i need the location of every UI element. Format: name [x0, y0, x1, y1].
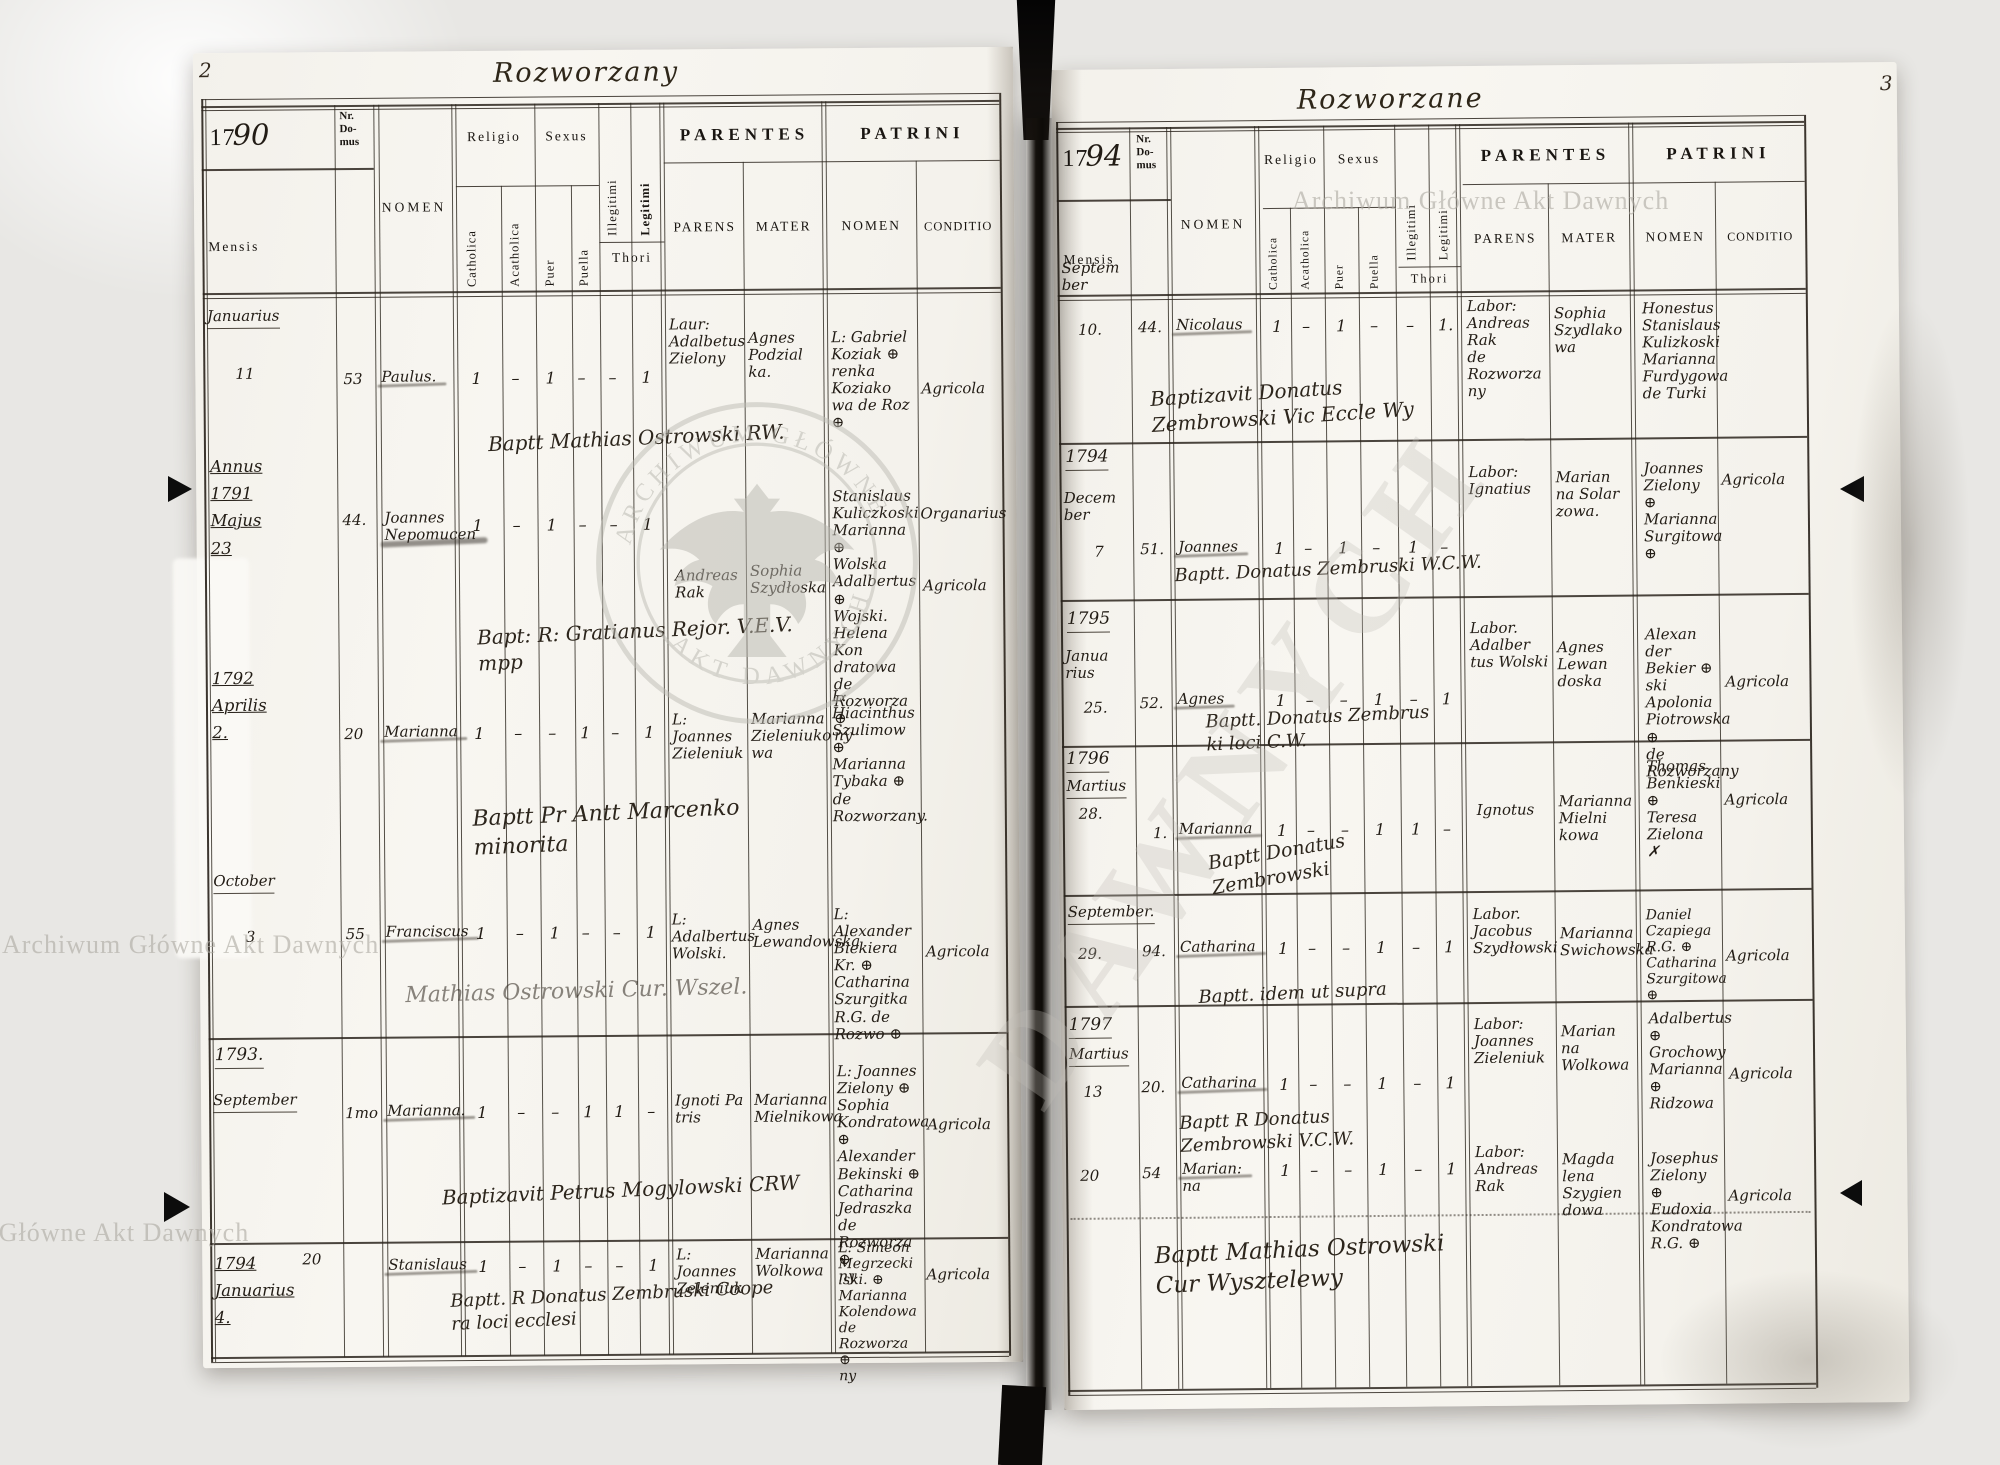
archive-watermark-text: Archiwum Główne Akt Dawnych — [0, 1218, 249, 1248]
baptism-note: Baptt Mathias Ostrowski Cur Wysztelewy — [1154, 1229, 1447, 1302]
cell-puella-mark: – — [582, 924, 590, 942]
column-header-puer: Puer — [1333, 219, 1347, 289]
baptism-note: Baptt Pr Antt Marcenko minorita — [472, 794, 742, 863]
cell-month: Decem ber — [1064, 489, 1117, 524]
cell-godparents: Daniel Czapiega R.G. ⊕ Catharina Szurgit… — [1646, 908, 1723, 1004]
grid-line — [1548, 183, 1561, 1385]
cell-mother: Marianna Mielnikowa — [754, 1091, 830, 1126]
page-number: 2 — [199, 59, 212, 82]
cell-godparents: Josephus Zielony ⊕ Eudoxia Kondratowa R.… — [1650, 1150, 1723, 1253]
cell-godparents: Honestus Stanislaus Kulizkoski Marianna … — [1642, 300, 1715, 403]
column-header-parentes: PARENTES — [663, 124, 825, 145]
cell-acatholica-mark: – — [517, 1104, 525, 1122]
cell-legitimi-mark: 1 — [1444, 938, 1454, 956]
cell-illegitimi-mark: – — [613, 924, 621, 942]
column-header-religio: Religio — [1258, 151, 1323, 167]
cell-legitimi-mark: 1 — [1442, 690, 1452, 708]
year-cell: 1790 — [209, 119, 269, 153]
grid-line — [201, 93, 999, 100]
column-header-sexus: Sexus — [534, 128, 598, 144]
cell-day: 20 — [1080, 1168, 1099, 1185]
entry-row: October 3 55 Franciscus 1 – 1 – – 1 L: A… — [199, 865, 1019, 871]
cell-mother: Agnes Lewan doska — [1557, 639, 1631, 691]
cell-day: 11 — [235, 366, 254, 383]
column-header-acatholica: Acatholica — [1299, 214, 1313, 290]
column-header-puella: Puella — [1368, 219, 1382, 289]
cell-condition: Agricola — [921, 380, 985, 398]
cell-acatholica-mark: – — [512, 517, 520, 535]
column-header-mensis: Mensis — [208, 239, 259, 255]
cell-name: Joannes — [1178, 538, 1238, 556]
cell-legitimi-mark: 1 — [1446, 1160, 1456, 1178]
cell-condition: Agricola — [1721, 471, 1785, 489]
cell-catholica-mark: 1 — [474, 725, 484, 743]
cell-condition: Agricola — [1728, 1187, 1792, 1205]
grid-line — [1428, 124, 1441, 1386]
cell-mother: Sophia Szydlako wa — [1554, 305, 1628, 357]
column-header-acatholica: Acatholica — [507, 193, 522, 287]
cell-name: Joannes Nepomucen — [384, 509, 476, 544]
column-header-thori: Thori — [599, 250, 664, 266]
grid-line — [203, 287, 1001, 295]
column-header-patrini-nomen: NOMEN — [828, 218, 914, 234]
entry-row: Januarius 11 53 Paulus. 1 – 1 – – 1 Laur… — [195, 302, 1015, 308]
cell-catholica-mark: 1 — [471, 370, 481, 388]
cell-catholica-mark: 1 — [1278, 940, 1288, 958]
column-header-patrini: PATRINI — [1632, 143, 1804, 164]
cell-name: Marianna. — [387, 1102, 465, 1120]
cell-year: 1794 — [1065, 448, 1108, 472]
cell-puella-mark: 1 — [1376, 939, 1386, 957]
cell-legitimi-mark: – — [647, 1103, 655, 1121]
cell-condition: Agricola — [1725, 673, 1789, 691]
cell-mother: Marianna Wolkowa — [755, 1245, 831, 1280]
cell-legitimi-mark: – — [1443, 820, 1451, 838]
column-header-parens: PARENS — [1464, 230, 1546, 246]
cell-catholica-mark: 1 — [1280, 1162, 1290, 1180]
cell-catholica-mark: 1 — [478, 1258, 488, 1276]
cell-condition: Agricola — [926, 943, 990, 961]
cell-puer-mark: – — [548, 724, 556, 742]
grid-line — [501, 186, 511, 1356]
binding-tape-bottom — [998, 1385, 1046, 1465]
cell-mother: Marianna Mielni kowa — [1559, 793, 1633, 845]
cell-day: 10. — [1078, 322, 1102, 339]
cell-acatholica-mark: – — [511, 370, 519, 388]
column-header-nr-domus: Nr. Do- mus — [339, 110, 373, 150]
cell-father: Labor. Adalber tus Wolski — [1470, 619, 1550, 671]
column-header-patrini: PATRINI — [825, 123, 999, 144]
cell-puella-mark: – — [1370, 317, 1378, 335]
cell-mother: Marianna Swichowska — [1560, 925, 1634, 960]
cell-year-month: Annus 1791 Majus 23 — [210, 453, 263, 562]
cell-house-number: 53 — [343, 371, 362, 388]
cell-puer-mark: 1 — [1336, 317, 1346, 335]
cell-house-number: 1mo — [345, 1105, 378, 1122]
cell-name: Marian: na — [1182, 1160, 1242, 1195]
cell-house-number: 20. — [1141, 1079, 1165, 1096]
column-header-nr-domus: Nr. Do- mus — [1136, 133, 1168, 173]
cell-condition: Agricola — [1725, 791, 1789, 809]
cell-puer-mark: 1 — [545, 369, 555, 387]
cell-acatholica-mark: – — [518, 1258, 526, 1276]
cell-name: Franciscus — [386, 923, 469, 941]
archive-eagle-watermark: ARCHIWUM GŁÓWNE AKT DAWNYCH — [592, 398, 922, 728]
column-header-parens: PARENS — [666, 219, 743, 235]
column-header-conditio: CONDITIO — [916, 219, 1000, 234]
cell-month: Martius — [1066, 777, 1126, 799]
cell-puella-mark: 1 — [583, 1103, 593, 1121]
cell-legitimi-mark: 1 — [648, 1257, 658, 1275]
cell-mother: Agnes Podzial ka. — [748, 329, 822, 381]
cell-house-number: 20 — [344, 726, 363, 743]
cell-puella-mark: 1 — [1377, 1075, 1387, 1093]
grid-line — [1804, 115, 1818, 1388]
cell-puella-mark: – — [577, 369, 585, 387]
cell-acatholica-mark: – — [1302, 318, 1310, 336]
baptism-note: Baptizavit Petrus Mogylowski CRW — [441, 1169, 799, 1210]
cell-day: 25. — [1084, 700, 1108, 717]
cell-father: Laur: Adalbetus Zielony — [669, 316, 743, 368]
column-header-thori: Thori — [1399, 271, 1461, 286]
cell-puella-mark: – — [584, 1257, 592, 1275]
page-title-script: Rozworzany — [493, 57, 679, 89]
cell-month: Janua rius — [1065, 648, 1109, 683]
cell-legitimi-mark: 1 — [1445, 1074, 1455, 1092]
cell-illegitimi-mark: 1 — [614, 1103, 624, 1121]
cell-legitimi-mark: 1 — [646, 924, 656, 942]
cell-month: Septem ber — [1061, 259, 1119, 294]
baptism-note: Baptt R Donatus Zembrowski V.C.W. — [1179, 1104, 1355, 1158]
cell-catholica-mark: 1 — [477, 1104, 487, 1122]
column-header-nomen: NOMEN — [376, 199, 452, 215]
cell-godparents: L: Simeon Megrzecki lski. ⊕ Marianna Kol… — [838, 1241, 923, 1385]
cell-puer-mark: 1 — [552, 1257, 562, 1275]
cell-father: Labor: Joannes Zieleniuk — [1474, 1015, 1554, 1067]
cell-month: October — [213, 873, 275, 895]
cell-father: Ignoti Pa tris — [675, 1092, 749, 1127]
baptism-note: Baptt. R Donatus Zembruski Coope ra loci… — [450, 1276, 775, 1337]
cell-year: 1795 — [1067, 610, 1110, 634]
column-header-illegitimi: Illegitimi — [604, 114, 619, 236]
column-header-catholica: Catholica — [1267, 214, 1281, 290]
cell-godparents: Thomas Benkieski ⊕ Teresa Zielona ✗ — [1646, 758, 1719, 861]
cell-father: L: Adalbertus Wolski. — [672, 911, 750, 963]
page-marker-right — [1840, 1180, 1862, 1206]
cell-name: Catharina — [1181, 1074, 1257, 1092]
eagle-emblem-icon: ARCHIWUM GŁÓWNE AKT DAWNYCH — [592, 398, 922, 728]
cell-house-number: 51. — [1140, 541, 1164, 558]
page-number: 3 — [1880, 72, 1893, 95]
grid-line — [999, 93, 1011, 1356]
cell-catholica-mark: 1 — [1272, 318, 1282, 336]
cell-puella-mark: 1 — [1378, 1161, 1388, 1179]
year-handwritten: 94 — [1085, 138, 1122, 172]
scanned-register-photo: 2 Rozworzany — [0, 0, 2000, 1465]
grid-line — [1057, 199, 1171, 202]
cell-legitimi-mark: 1 — [641, 369, 651, 387]
cell-condition: Agricola — [1726, 947, 1790, 965]
cell-acatholica-mark: – — [1309, 1076, 1317, 1094]
cell-mother: Agnes Lewandowska — [753, 916, 829, 951]
cell-month: September — [213, 1091, 297, 1113]
book-gutter — [1026, 118, 1052, 1410]
year-handwritten: 90 — [232, 118, 269, 152]
cell-catholica-mark: 1 — [476, 925, 486, 943]
cell-illegitimi-mark: – — [608, 369, 616, 387]
page-marker-left — [168, 476, 192, 502]
cell-year: 1796 — [1066, 750, 1109, 774]
baptism-note: Baptizavit Donatus Zembrowski Vic Eccle … — [1149, 370, 1414, 438]
cell-illegitimi-mark: – — [1414, 1161, 1422, 1179]
cell-condition-2: Agricola — [923, 577, 987, 595]
grid-line — [202, 168, 374, 171]
cell-year-month: 1792 Aprilis 2. — [212, 665, 267, 747]
cell-house-number: 54 — [1142, 1165, 1161, 1182]
cell-month: Januarius — [207, 308, 280, 330]
archive-watermark-text: Archiwum Główne Akt Dawnych — [1292, 186, 1669, 216]
column-header-puella: Puella — [576, 200, 591, 286]
cell-puella-mark: – — [578, 516, 586, 534]
cell-acatholica-mark: – — [1310, 1162, 1318, 1180]
cell-house-number: 44. — [342, 512, 366, 529]
cell-house-number: 52. — [1140, 695, 1164, 712]
scan-stain — [1850, 300, 1970, 800]
cell-illegitimi-mark: – — [1413, 1075, 1421, 1093]
column-header-religio: Religio — [453, 129, 534, 145]
cell-illegitimi-mark: – — [1412, 939, 1420, 957]
archive-watermark-text: Archiwum Główne Akt Dawnych — [2, 930, 379, 960]
grid-line — [1129, 127, 1142, 1389]
cell-year-month: 1794 Januarius 4. — [214, 1249, 294, 1331]
cell-puer-mark: – — [1344, 1161, 1352, 1179]
grid-line — [456, 185, 599, 187]
column-header-mater: MATER — [745, 218, 822, 234]
entry-row: 1797 Martius 13 20. Catharina 1 – – 1 – … — [1061, 1006, 1906, 1014]
cell-catholica-mark: 1 — [473, 517, 483, 535]
cell-mother: Marian na Wolkowa — [1561, 1023, 1635, 1075]
cell-name: Paulus. — [381, 368, 436, 386]
grid-line — [1394, 125, 1407, 1387]
cell-name: Stanislaus — [388, 1256, 467, 1274]
cell-father: Labor. Jacobus Szydłowski — [1473, 905, 1553, 957]
cell-day: 7 — [1094, 544, 1104, 561]
column-header-catholica: Catholica — [464, 193, 479, 287]
column-header-puer: Puer — [542, 200, 557, 286]
cell-puer-mark: – — [1342, 939, 1350, 957]
column-header-conditio: CONDITIO — [1717, 230, 1803, 244]
cell-illegitimi-mark: – — [615, 1257, 623, 1275]
cell-illegitimi-mark: – — [1406, 317, 1414, 335]
cell-day: 28. — [1079, 806, 1103, 823]
grid-line — [664, 160, 1000, 164]
cell-puer-mark: 1 — [546, 516, 556, 534]
cell-legitimi-mark: 1. — [1438, 316, 1453, 334]
cell-house-number: 20 — [302, 1251, 321, 1268]
cell-father: Ignotus — [1477, 801, 1553, 819]
cell-illegitimi-mark: 1 — [1411, 821, 1421, 839]
cell-puer-mark: – — [551, 1103, 559, 1121]
scan-stain — [1660, 1270, 1960, 1450]
cell-acatholica-mark: – — [1308, 940, 1316, 958]
entry-row: 1795 Janua rius 25. 52. Agnes 1 – – 1 – … — [1057, 600, 1902, 608]
cell-puella-mark: 1 — [580, 724, 590, 742]
cell-father: Labor: Andreas Rak — [1475, 1143, 1555, 1195]
cell-puer-mark: 1 — [550, 924, 560, 942]
column-header-parentes: PARENTES — [1462, 145, 1628, 166]
cell-puella-mark: 1 — [1375, 821, 1385, 839]
cell-father: Labor: Andreas Rak de Rozworza ny — [1467, 297, 1548, 400]
column-header-nomen: NOMEN — [1173, 216, 1253, 232]
column-header-mater: MATER — [1550, 230, 1628, 246]
column-header-sexus: Sexus — [1323, 151, 1394, 167]
column-header-legitimi: Legitimi — [637, 114, 652, 236]
cell-name: Nicolaus — [1176, 316, 1243, 334]
cell-year: 1793. — [215, 1046, 264, 1070]
cell-name: Marianna — [384, 723, 458, 741]
column-header-patrini-nomen: NOMEN — [1637, 229, 1713, 245]
cell-condition: Agricola — [926, 1266, 990, 1284]
cell-puer-mark: – — [1343, 1075, 1351, 1093]
cell-condition: Agricola — [1729, 1065, 1793, 1083]
cell-mother: Marian na Solar zowa. — [1555, 469, 1629, 521]
page-title-script: Rozworzane — [1297, 84, 1484, 117]
year-cell: 1794 — [1062, 139, 1122, 173]
cell-godparents: Adalbertus ⊕ Grochowy Marianna ⊕ Ridzowa — [1649, 1010, 1722, 1113]
cell-acatholica-mark: – — [516, 925, 524, 943]
cell-catholica-mark: 1 — [1274, 540, 1284, 558]
cell-catholica-mark: 1 — [1279, 1076, 1289, 1094]
cell-condition: Agricola — [927, 1116, 991, 1134]
cell-condition: Organarius — [920, 505, 1006, 523]
cell-mother: Magda lena Szygien dowa — [1562, 1151, 1637, 1220]
cell-house-number: 44. — [1138, 319, 1162, 336]
cell-acatholica-mark: – — [514, 725, 522, 743]
cell-godparents: Joannes Zielony ⊕ Marianna Surgitowa ⊕ — [1643, 460, 1716, 563]
